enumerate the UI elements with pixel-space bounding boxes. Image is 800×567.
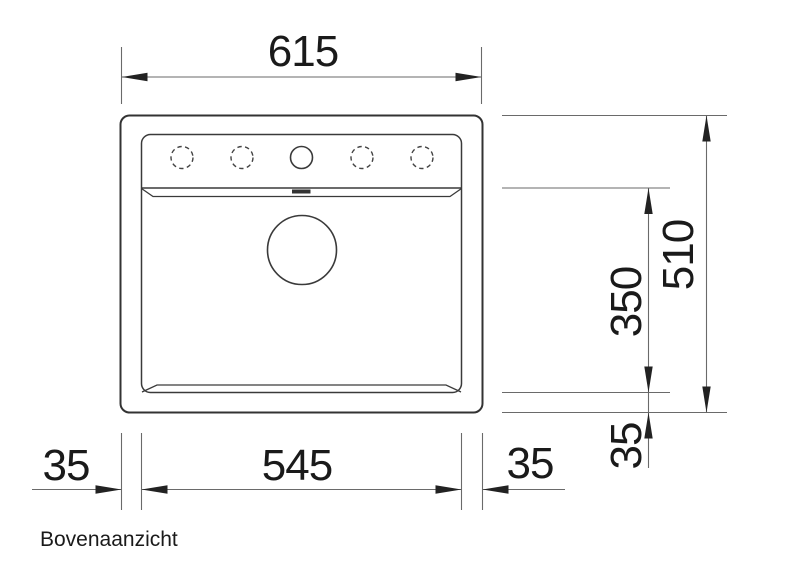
arrow-left-icon	[483, 485, 509, 493]
arrow-right-icon	[456, 73, 482, 81]
arrow-up-icon	[702, 116, 710, 142]
sink-technical-drawing: 615 510 350 35 35	[0, 0, 800, 567]
faucet-hole-optional-3-icon	[351, 147, 373, 169]
dimension-right-margin: 35	[483, 439, 566, 494]
right-margin-value: 35	[507, 439, 554, 488]
dimension-overall-depth: 510	[502, 116, 727, 413]
faucet-hole-optional-4-icon	[411, 147, 433, 169]
sink-inner-outline	[142, 135, 462, 393]
faucet-hole-optional-1-icon	[171, 147, 193, 169]
dimension-overall-width: 615	[122, 27, 482, 104]
faucet-hole-optional-2-icon	[231, 147, 253, 169]
top-view-canvas: 615 510 350 35 35	[0, 0, 800, 567]
overall-depth-value: 510	[654, 220, 703, 290]
arrow-right-icon	[436, 485, 462, 493]
arrow-left-icon	[142, 485, 168, 493]
dimension-bowl-width: 545	[142, 441, 462, 494]
bowl-depth-value: 350	[602, 267, 651, 337]
arrow-left-icon	[122, 73, 148, 81]
bowl-width-value: 545	[262, 441, 332, 490]
overall-width-value: 615	[268, 27, 338, 76]
overflow-slot	[292, 190, 311, 194]
dimension-left-margin: 35	[32, 441, 122, 494]
arrow-up-icon	[644, 188, 652, 214]
bowl-bottom-chamfer	[142, 385, 461, 392]
view-caption: Bovenaanzicht	[40, 528, 178, 551]
faucet-hole-center-icon	[291, 147, 313, 169]
arrow-down-icon	[644, 367, 652, 393]
drain-circle	[268, 216, 337, 285]
front-margin-value: 35	[602, 423, 651, 470]
left-margin-value: 35	[43, 441, 90, 490]
sink-top-view	[121, 116, 483, 413]
faucet-hole-row	[171, 147, 433, 169]
arrow-down-icon	[702, 387, 710, 413]
dimension-bottom-row: 35 545 35	[32, 433, 565, 510]
arrow-right-icon	[96, 485, 122, 493]
dimension-front-margin: 35	[602, 413, 653, 470]
sink-outer-outline	[121, 116, 483, 413]
